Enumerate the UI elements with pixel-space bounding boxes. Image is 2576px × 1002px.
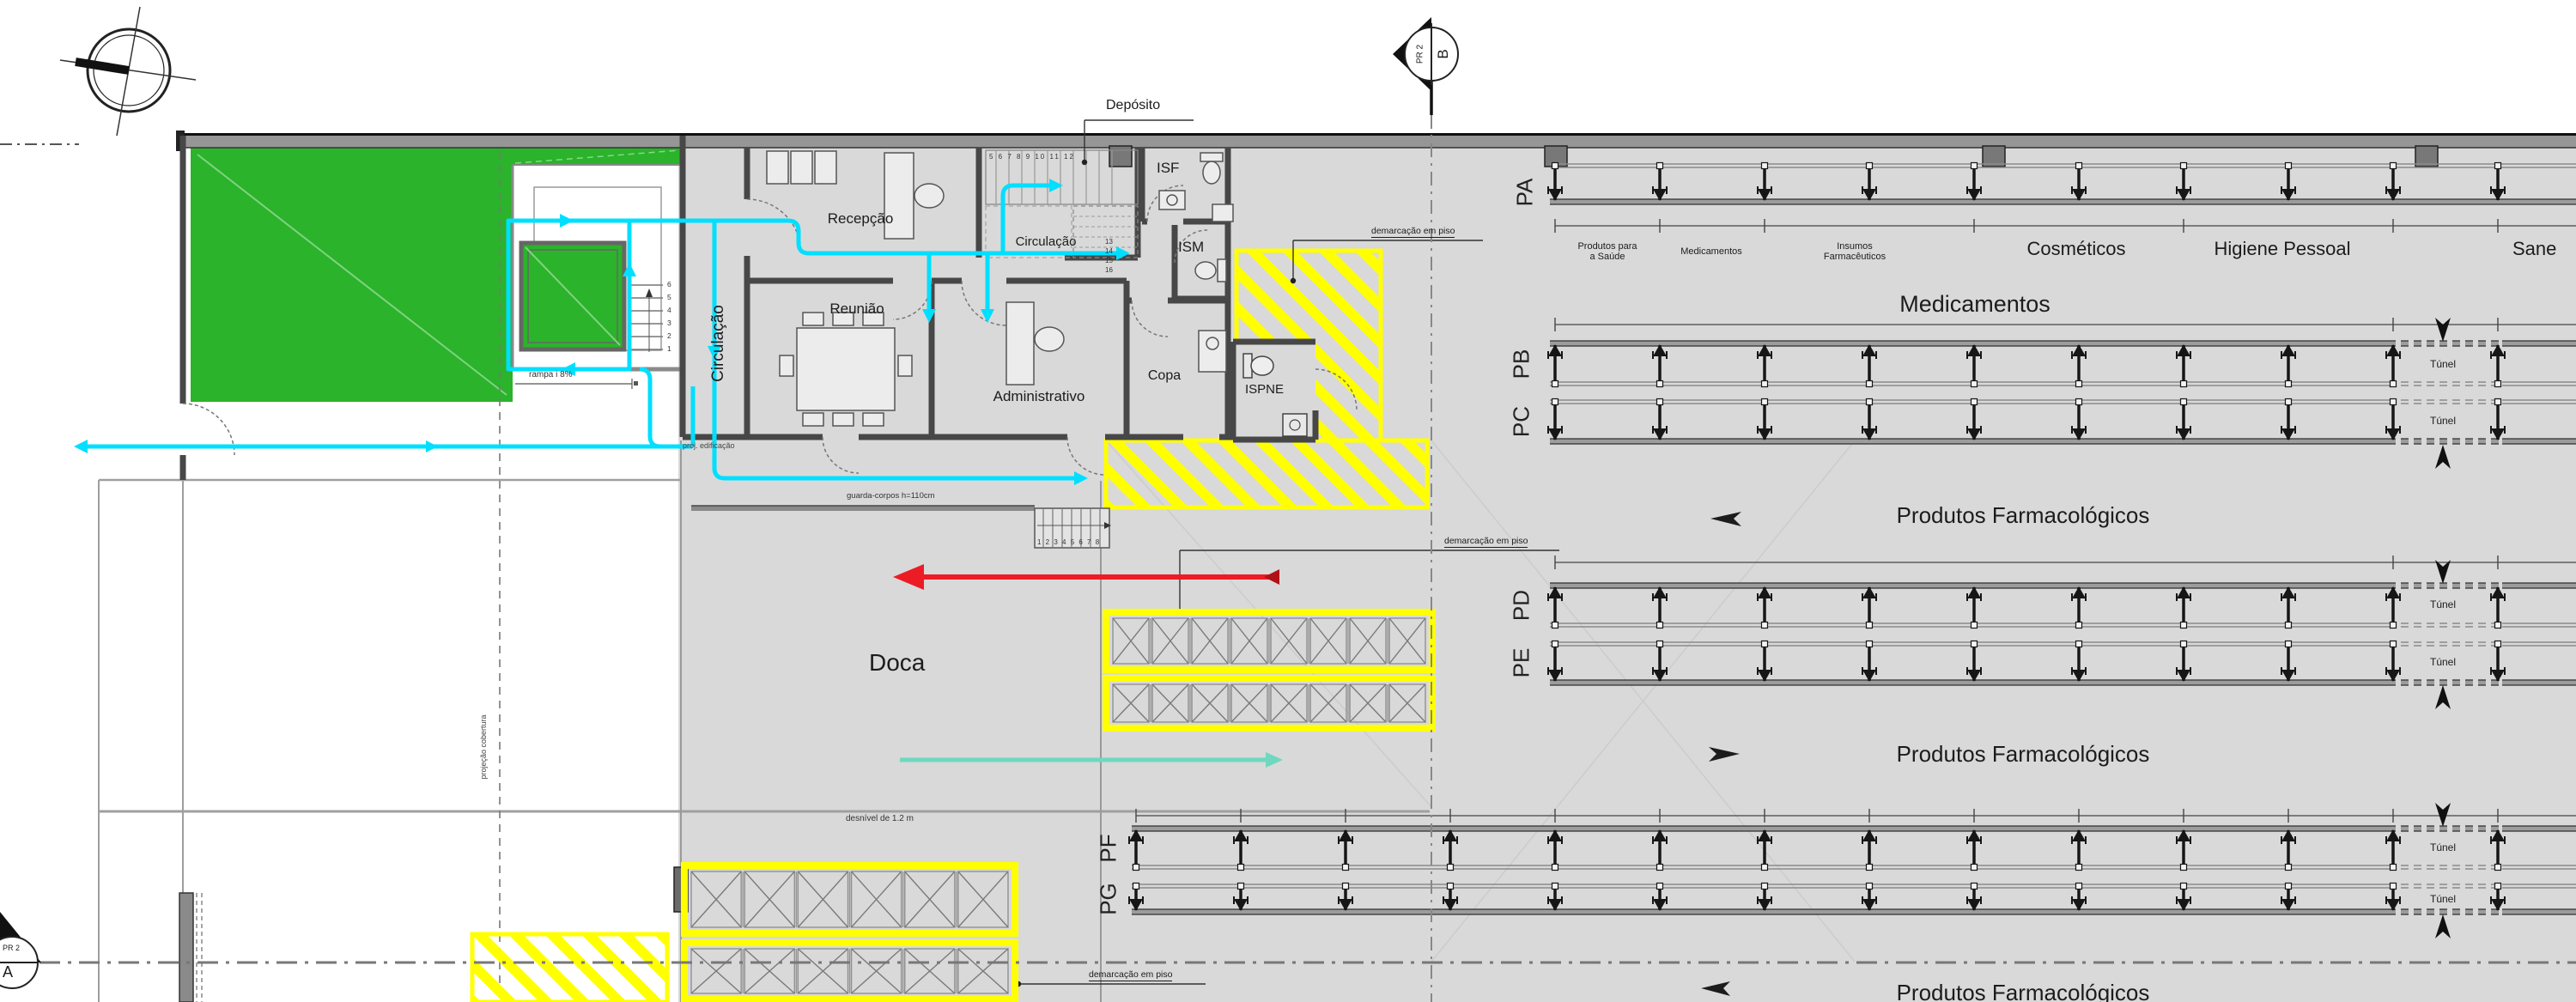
rack-row-label-pf: PF [1096, 834, 1122, 862]
north-compass-icon [60, 7, 196, 136]
tunnel-label-pe: Túnel [2430, 656, 2456, 668]
section-marker-a-face: A [3, 963, 13, 981]
zone-title-farmacologicos-upper: Produtos Farmacológicos [1897, 502, 2150, 529]
rack-row-label-pa: PA [1512, 179, 1539, 207]
tunnel-label-pg: Túnel [2430, 893, 2456, 905]
annotation-projecao-cobertura: projeção cobertura [479, 714, 488, 779]
tunnel-label-pc: Túnel [2430, 415, 2456, 427]
stair-numbers-garden: 6 5 4 3 2 1 [667, 278, 676, 355]
rack-row-label-pb: PB [1509, 349, 1535, 380]
stair-numbers-internal-side: 13 14 15 16 [1105, 237, 1119, 275]
rack-row-label-pe: PE [1509, 648, 1535, 678]
annotation-guarda-corpos: guarda-corpos h=110cm [847, 491, 935, 501]
zone-title-medicamentos: Medicamentos [1899, 291, 2050, 318]
floor-plan-linework [0, 0, 2576, 1002]
section-label-saneantes-clipped: Sane [2512, 238, 2556, 260]
room-label-circulacao-corridor: Circulação [709, 305, 728, 382]
rack-row-label-pc: PC [1509, 406, 1535, 437]
annotation-demarcacao-top: demarcação em piso [1371, 226, 1455, 238]
room-label-recepcao: Recepção [828, 210, 894, 228]
room-label-reuniao: Reunião [829, 301, 884, 318]
room-label-administrativo: Administrativo [993, 388, 1085, 405]
rack-row-label-pd: PD [1509, 590, 1535, 621]
stair-numbers-internal: 5 6 7 8 9 10 11 12 [989, 153, 1075, 161]
annotation-rampa: rampa i 8% [529, 370, 573, 380]
section-marker-b-face: B [1435, 49, 1452, 58]
tunnel-label-pd: Túnel [2430, 598, 2456, 610]
zone-title-farmacologicos-lower: Produtos Farmacológicos [1897, 741, 2150, 768]
rack-row-label-pg: PG [1096, 883, 1122, 915]
tunnel-label-pf: Túnel [2430, 841, 2456, 853]
section-label-higiene: Higiene Pessoal [2215, 238, 2351, 260]
room-label-ism: ISM [1178, 239, 1204, 256]
section-label-medicamentos-small: Medicamentos [1680, 246, 1742, 257]
annotation-demarcacao-bottom: demarcação em piso [1089, 969, 1172, 981]
tunnel-label-pb: Túnel [2430, 358, 2456, 370]
annotation-desnivel: desnível de 1.2 m [846, 814, 914, 823]
floor-plan-sheet: Recepção Circulação Circulação Reunião A… [0, 0, 2576, 1002]
room-label-copa: Copa [1148, 368, 1181, 384]
room-label-ispne: ISPNE [1245, 382, 1284, 397]
zone-title-farmacologicos-bottom: Produtos Farmacológicos [1897, 980, 2150, 1002]
section-label-insumos: Insumos Farmacêuticos [1824, 241, 1886, 262]
section-marker-b-code: PR 2 [1416, 45, 1425, 64]
section-marker-a-code: PR 2 [3, 944, 20, 952]
stair-numbers-dock: 1 2 3 4 5 6 7 8 [1037, 538, 1101, 546]
annotation-demarcacao-mid: demarcação em piso [1444, 536, 1528, 548]
section-label-produtos-saude: Produtos para a Saúde [1577, 241, 1637, 262]
room-label-deposito: Depósito [1106, 98, 1160, 113]
garden-areas [191, 148, 683, 402]
area-label-doca: Doca [869, 649, 925, 677]
section-label-cosmeticos: Cosméticos [2027, 238, 2126, 260]
room-label-isf: ISF [1157, 160, 1179, 177]
annotation-proj-edificacao: proj. edificação [683, 441, 735, 450]
room-label-circulacao-hall: Circulação [1016, 234, 1077, 249]
